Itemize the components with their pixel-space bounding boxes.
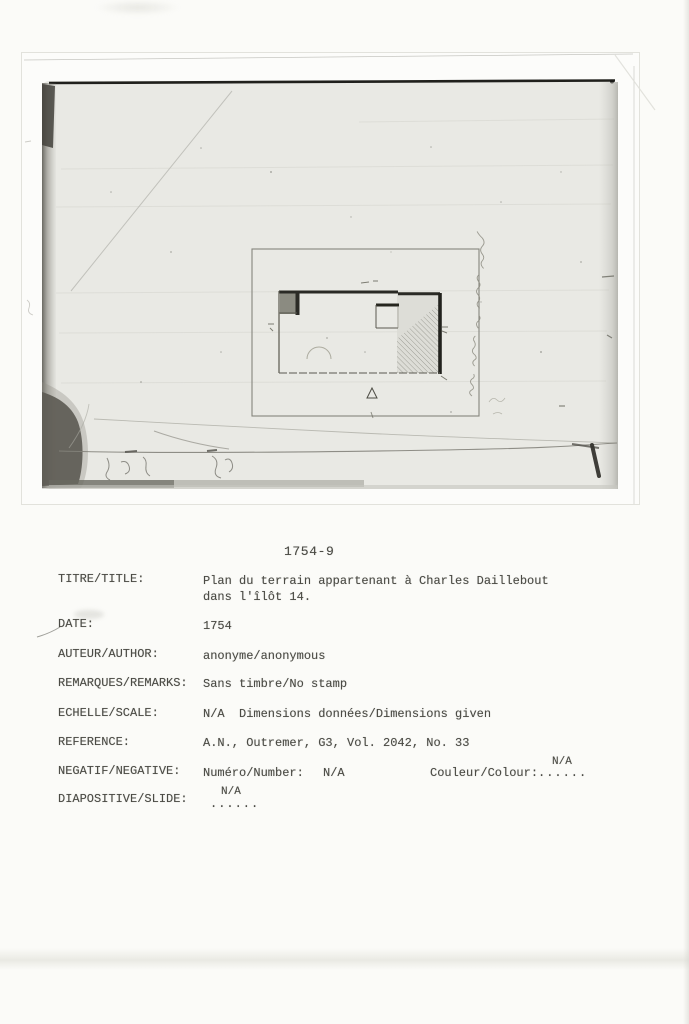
date-label: DATE: xyxy=(58,617,94,631)
author-value: anonyme/anonymous xyxy=(203,649,325,663)
negative-label: NEGATIF/NEGATIVE: xyxy=(58,764,180,778)
slide-value: N/A xyxy=(221,785,241,799)
catalog-card: 1754-9 TITRE/TITLE: Plan du terrain appa… xyxy=(0,0,689,1024)
slide-dots: ...... xyxy=(210,797,259,811)
catalog-number: 1754-9 xyxy=(284,545,334,559)
remarks-label: REMARQUES/REMARKS: xyxy=(58,676,188,690)
negative-colour-value: N/A xyxy=(552,755,572,769)
negative-number-value: N/A xyxy=(323,766,345,780)
slide-label: DIAPOSITIVE/SLIDE: xyxy=(58,792,188,806)
title-label: TITRE/TITLE: xyxy=(58,572,144,586)
scale-label: ECHELLE/SCALE: xyxy=(58,706,159,720)
reference-value: A.N., Outremer, G3, Vol. 2042, No. 33 xyxy=(203,736,469,750)
reference-label: REFERENCE: xyxy=(58,735,130,749)
title-value-line2: dans l'îlôt 14. xyxy=(203,590,311,604)
scale-value: N/A Dimensions données/Dimensions given xyxy=(203,707,491,721)
title-value-line1: Plan du terrain appartenant à Charles Da… xyxy=(203,574,549,588)
date-value: 1754 xyxy=(203,619,232,633)
author-label: AUTEUR/AUTHOR: xyxy=(58,647,159,661)
negative-number-label: Numéro/Number: xyxy=(203,766,304,780)
remarks-value: Sans timbre/No stamp xyxy=(203,677,347,691)
negative-colour-label: Couleur/Colour: xyxy=(430,766,538,780)
